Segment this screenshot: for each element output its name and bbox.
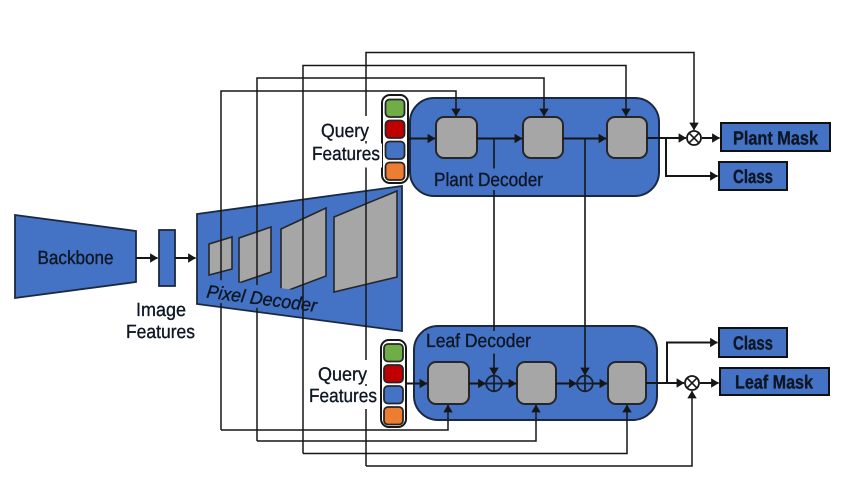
svg-text:Class: Class [733, 167, 773, 188]
svg-text:Query: Query [321, 121, 369, 142]
svg-text:Class: Class [733, 334, 773, 355]
svg-text:Query: Query [318, 365, 367, 386]
svg-text:Features: Features [126, 322, 195, 343]
svg-text:Plant Decoder: Plant Decoder [434, 170, 544, 191]
svg-text:Features: Features [312, 144, 380, 165]
svg-text:Leaf Mask: Leaf Mask [735, 373, 813, 394]
svg-text:Plant Mask: Plant Mask [733, 129, 818, 150]
svg-text:Features: Features [309, 386, 377, 407]
svg-text:Image: Image [136, 300, 186, 321]
svg-text:Leaf Decoder: Leaf Decoder [426, 331, 532, 352]
svg-text:Backbone: Backbone [38, 248, 114, 269]
